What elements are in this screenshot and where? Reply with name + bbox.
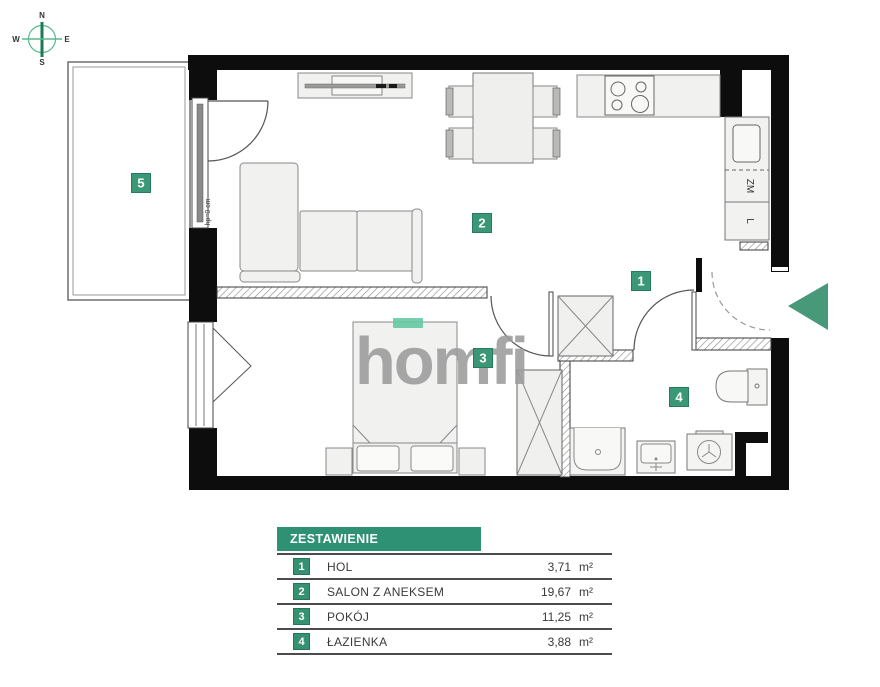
- hall: [558, 296, 613, 356]
- legend-title: ZESTAWIENIE POMIESZCZEŃ:: [277, 527, 481, 551]
- compass-w-label: W: [12, 35, 20, 44]
- room-name: SALON Z ANEKSEM: [327, 585, 444, 599]
- wall-left-upper: [189, 55, 217, 100]
- homfi-logo-text: homfi: [355, 324, 527, 399]
- wall-right-upper: [771, 55, 789, 272]
- hall-wardrobe: [558, 296, 613, 356]
- entry-door-frame-cap: [772, 267, 788, 271]
- room-number-badge: 3: [293, 608, 310, 625]
- kitchen-tall-units: ZML: [725, 117, 769, 240]
- wall-top: [188, 55, 789, 70]
- pillow: [357, 446, 399, 471]
- room-name: HOL: [327, 560, 353, 574]
- dimension-annotation: hp=0 cm: [205, 198, 212, 225]
- room-label-1: 1: [632, 272, 651, 291]
- wall-hall-stub: [696, 258, 702, 292]
- bathroom-door: [634, 290, 696, 350]
- dining-table: [473, 73, 533, 163]
- balcony-door-swing-arc: [208, 101, 268, 161]
- wall-kitchen-stub: [720, 68, 742, 117]
- kitchen-sink: [733, 125, 760, 162]
- floor-plan-page: N S W E: [0, 0, 880, 687]
- room-area-unit: m²: [579, 610, 605, 624]
- bathroom-door-leaf: [692, 292, 696, 350]
- compass-n-label: N: [39, 11, 45, 20]
- legend-header-row: ZESTAWIENIE POMIESZCZEŃ:: [277, 527, 612, 555]
- room-area-unit: m²: [579, 635, 605, 649]
- wall-bathroom-top-right: [694, 338, 771, 350]
- room-area-value: 3,71: [548, 560, 571, 574]
- room-number-badge: 1: [293, 558, 310, 575]
- livingroom-furniture: [240, 73, 560, 283]
- compass-s-label: S: [39, 58, 45, 67]
- compass-rose: N S W E: [12, 11, 70, 67]
- shaft-wall-left: [735, 443, 746, 476]
- room-label-4: 4: [670, 388, 689, 407]
- legend-row: 4 ŁAZIENKA 3,88 m²: [277, 630, 612, 655]
- toilet: [716, 369, 767, 405]
- wall-livingroom-bedroom: [217, 287, 487, 298]
- balcony: [68, 62, 190, 300]
- wall-right-lower: [771, 338, 789, 490]
- room-name: ŁAZIENKA: [327, 635, 387, 649]
- room-label-3: 3: [474, 349, 493, 368]
- appliance-label-zm: ZM: [744, 179, 755, 193]
- entrance-door: [712, 272, 828, 330]
- room-area-value: 19,67: [541, 585, 571, 599]
- washbasin: [637, 441, 675, 473]
- svg-text:3: 3: [479, 351, 486, 366]
- homfi-watermark: homfi: [355, 318, 527, 399]
- legend-row: 2 SALON Z ANEKSEM 19,67 m²: [277, 580, 612, 605]
- legend-table: ZESTAWIENIE POMIESZCZEŃ: 1 HOL 3,71 m² 2…: [277, 527, 612, 655]
- bedroom-door-leaf: [549, 292, 553, 356]
- room-area-unit: m²: [579, 560, 605, 574]
- wall-left-middle: [189, 228, 217, 322]
- legend-rows: 1 HOL 3,71 m² 2 SALON Z ANEKSEM 19,67 m²…: [277, 555, 612, 655]
- room-number-badge: 4: [293, 633, 310, 650]
- room-label-2: 2: [473, 214, 492, 233]
- entrance-arrow-icon: [788, 283, 828, 330]
- room-area-value: 3,88: [548, 635, 571, 649]
- tv-cabinet: [298, 73, 412, 98]
- legend-row: 3 POKÓJ 11,25 m²: [277, 605, 612, 630]
- room-area-unit: m²: [579, 585, 605, 599]
- nightstand-right: [459, 448, 485, 475]
- bathroom-door-swing-arc: [634, 290, 694, 350]
- svg-text:2: 2: [478, 216, 485, 231]
- floor-plan-svg: N S W E: [0, 0, 880, 520]
- room-number-badge: 2: [293, 583, 310, 600]
- pillow: [411, 446, 453, 471]
- wall-bottom: [189, 476, 789, 490]
- bedroom-window-swing: [213, 328, 251, 402]
- svg-text:5: 5: [137, 176, 144, 191]
- plan-annotations: hp=0 cm: [205, 198, 212, 225]
- entrance-door-swing-arc: [712, 272, 770, 330]
- svg-text:1: 1: [637, 274, 644, 289]
- compass-e-label: E: [64, 35, 70, 44]
- wall-kitchen-hall: [740, 242, 768, 250]
- svg-text:4: 4: [675, 390, 683, 405]
- appliance-label-l: L: [744, 218, 755, 224]
- legend-row: 1 HOL 3,71 m²: [277, 555, 612, 580]
- homfi-logo-accent: [393, 318, 423, 328]
- room-name: POKÓJ: [327, 610, 369, 624]
- washing-machine: [687, 431, 732, 470]
- dining-table-set: [446, 73, 560, 163]
- bathtub: [570, 428, 625, 475]
- bedroom-window: [188, 322, 251, 428]
- room-label-5: 5: [132, 174, 151, 193]
- room-area-value: 11,25: [542, 610, 571, 624]
- shaft-wall-top: [735, 432, 768, 443]
- corner-sofa: [240, 163, 422, 283]
- nightstand-left: [326, 448, 352, 475]
- cooktop: [605, 76, 654, 115]
